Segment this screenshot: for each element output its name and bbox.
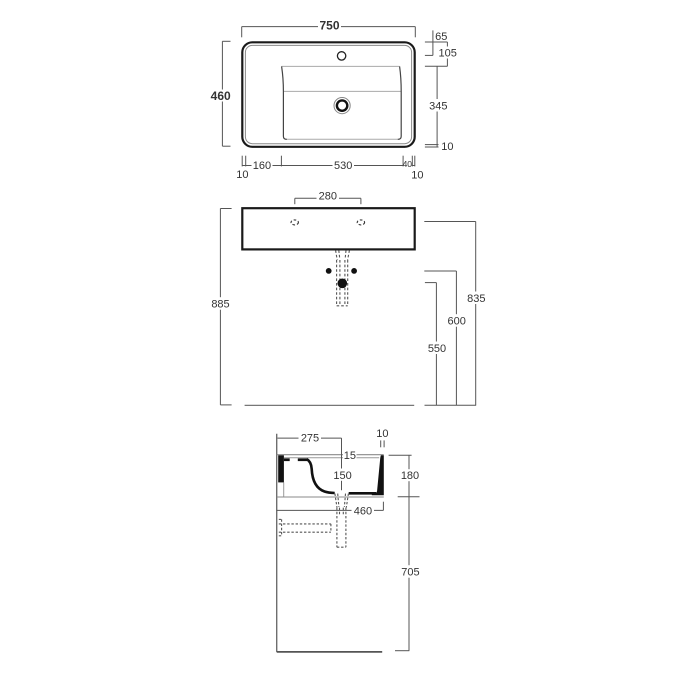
svg-text:10: 10 [236,169,248,181]
svg-text:105: 105 [439,48,457,60]
svg-text:460: 460 [211,89,231,103]
svg-text:280: 280 [319,190,337,202]
svg-text:160: 160 [253,160,271,172]
svg-text:835: 835 [467,293,485,305]
svg-text:180: 180 [401,470,419,482]
svg-text:65: 65 [435,31,447,43]
svg-text:10: 10 [441,141,453,153]
svg-text:600: 600 [448,316,466,328]
svg-text:885: 885 [211,299,229,311]
svg-text:345: 345 [429,100,447,112]
svg-text:275: 275 [301,432,319,444]
svg-text:460: 460 [354,505,372,517]
svg-text:750: 750 [319,18,339,32]
svg-text:10: 10 [411,169,423,181]
svg-text:150: 150 [333,470,351,482]
svg-text:550: 550 [428,343,446,355]
svg-text:10: 10 [376,428,388,440]
svg-text:15: 15 [344,450,356,462]
svg-text:40: 40 [403,159,413,169]
svg-text:530: 530 [334,160,352,172]
svg-text:705: 705 [401,567,419,579]
